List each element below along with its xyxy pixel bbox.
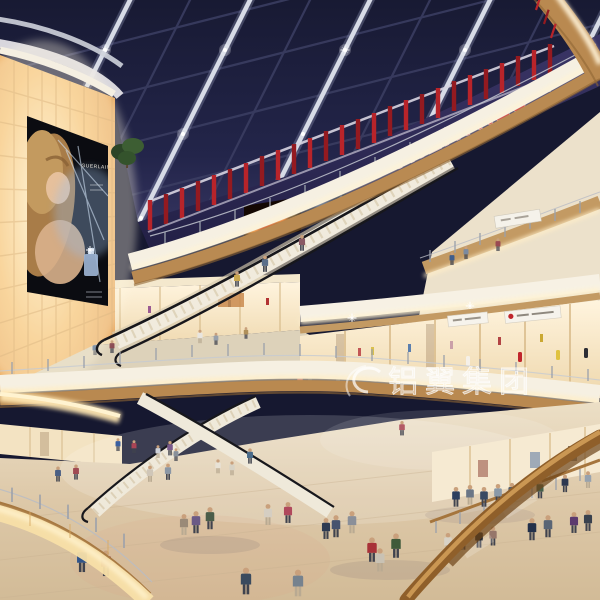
mall-rendering: GUERLAIN THEATRES xyxy=(0,0,600,600)
perfume-bottle xyxy=(84,254,98,276)
watermark-text: 铝翼集团 xyxy=(388,365,536,400)
mall-scene: GUERLAIN THEATRES xyxy=(0,0,600,600)
